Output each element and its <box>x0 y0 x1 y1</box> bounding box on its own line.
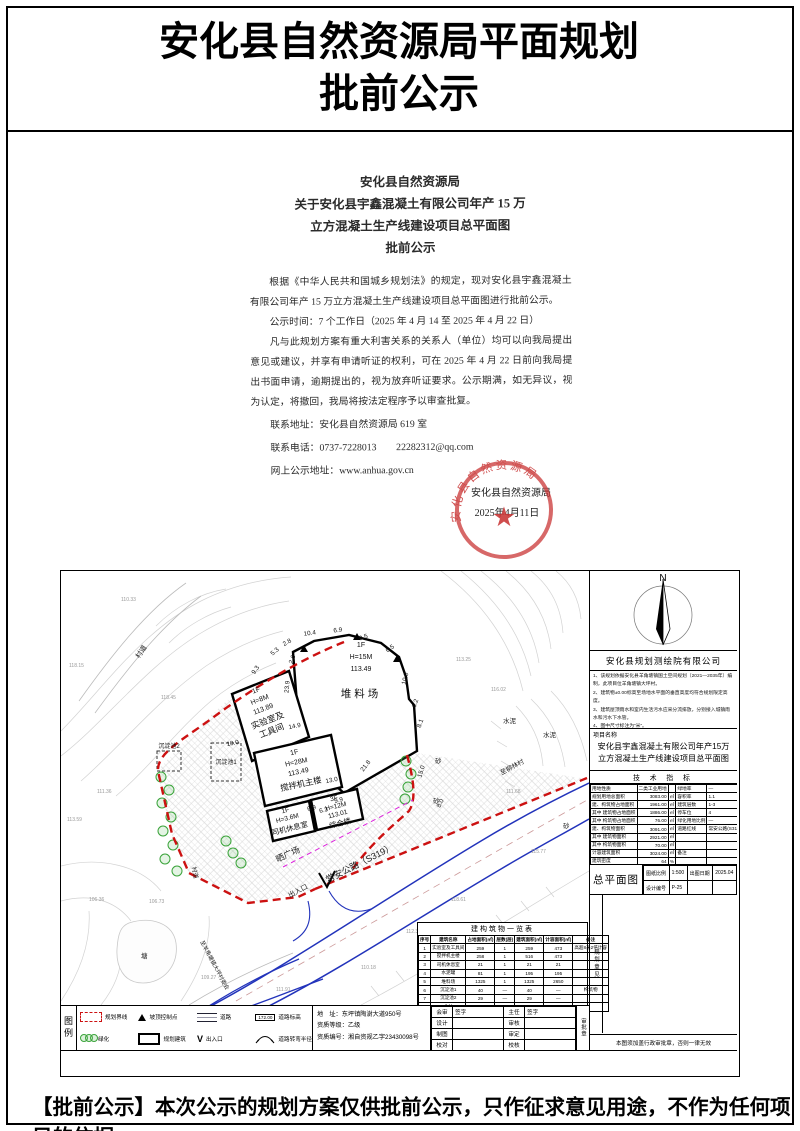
table-row: 计容建筑面积3024.00㎡备注 <box>591 849 738 857</box>
table-cell: 绿地率 <box>676 785 707 793</box>
cement-label: 水泥 <box>543 730 557 739</box>
legend-label: 绿化 <box>98 1035 109 1043</box>
table-cell: 1325 <box>466 977 495 985</box>
table-cell: 层数(层) <box>495 936 515 944</box>
elev: 118.45 <box>161 695 176 701</box>
table-cell: 堆料场 <box>431 977 466 985</box>
table-cell: 出图日期 <box>687 866 713 881</box>
table-cell: 主任 <box>504 1007 525 1018</box>
table-cell: 40 <box>515 986 544 994</box>
turn-radius-symbol <box>255 1034 275 1044</box>
table-cell <box>707 849 737 857</box>
table-cell <box>525 1029 576 1040</box>
review-area: 规划意见 本图须加盖行政审批章，否则一律无效 <box>590 895 737 1050</box>
tank1-label: 沉淀池1 <box>215 758 237 766</box>
table-cell: 2025.04 <box>713 866 737 881</box>
table-cell: 其中 建筑物面积 <box>591 833 638 841</box>
elev: 113.25 <box>456 657 471 663</box>
table-cell: 计容建筑面积 <box>591 849 638 857</box>
legend-item-elevation: 172.00道路标高 <box>252 1006 312 1028</box>
table-cell: 建筑层数 <box>676 801 707 809</box>
table-row: 建筑密度64% <box>591 857 738 865</box>
elev: 111.36 <box>97 789 112 795</box>
table-cell: 473 <box>544 952 573 960</box>
table-cell: 40 <box>466 986 495 994</box>
table-cell: ㎡ <box>668 793 676 801</box>
legend-bar: 图例 规划界线 坡顶控制点 道路 172.00道路标高 绿化 规划建筑 V出入口… <box>61 1005 589 1050</box>
table-cell <box>676 833 707 841</box>
public-notice-page: 安化县自然资源局平面规划 批前公示 安化县自然资源局 关于安化县宇鑫混凝土有限公… <box>0 0 800 1131</box>
table-cell: 签字 <box>525 1007 576 1018</box>
table-cell: 6 <box>419 986 431 994</box>
notice-title-1: 安化县自然资源局 <box>249 171 571 195</box>
table-cell: 建筑名称 <box>431 936 466 944</box>
table-cell: 3091.00 <box>637 825 668 833</box>
table-row: 4水泥罐811195195 <box>419 969 609 977</box>
table-cell: 审核 <box>504 1018 525 1029</box>
official-seal: 安化县自然资源局 ★ <box>438 448 570 570</box>
table-cell: 校核 <box>504 1040 525 1051</box>
dim: 23.9 <box>283 680 291 693</box>
table-cell: 停车位 <box>676 809 707 817</box>
table-cell: 1-3 <box>707 801 737 809</box>
stamp-required-note: 本图须加盖行政审批章，否则一律无效 <box>590 1034 737 1050</box>
road-symbol <box>197 1013 217 1022</box>
north-letter: N <box>659 573 666 584</box>
technical-indicators: 技 术 指 标 用地性质二类工业用地绿地率—规划用地总面积3083.00㎡容积率… <box>590 771 737 865</box>
table-cell: 沉淀池1 <box>431 986 466 994</box>
table-row: 5堆料场1325113252650 <box>419 977 609 985</box>
table-row: 图纸比例1:500出图日期2025.04 <box>644 866 737 881</box>
table-cell: 制图 <box>432 1029 453 1040</box>
buildings-list-table: 建构筑物一览表 序号建筑名称占地面积(㎡)层数(层)建筑面积(㎡)计容面积(㎡)… <box>417 922 588 1013</box>
table-cell: 序号 <box>419 936 431 944</box>
sand-label: 砂 <box>563 821 570 830</box>
drawing-info-row: 总平面图 图纸比例1:500出图日期2025.04设计编号P-25 <box>590 865 737 895</box>
table-row: 会审签字主任签字 <box>432 1007 576 1018</box>
table-cell: 516 <box>515 952 544 960</box>
table-cell: 1 <box>495 961 515 969</box>
table-cell: — <box>707 785 737 793</box>
table-cell: ㎡ <box>668 817 676 825</box>
table-row: 建、构筑物占地面积1961.00㎡建筑层数1-3 <box>591 801 738 809</box>
table-cell: 1 <box>495 969 515 977</box>
table-cell <box>668 785 676 793</box>
elev: 115.77 <box>531 849 546 855</box>
qualification-grade: 资质等级：乙级 <box>317 1020 428 1031</box>
table-row: 1实验室及工具间2591259473高超8米2倍计容 <box>419 944 609 952</box>
plan-notes: 1、该规划依据安化县羊角塘镇国土空间规划（2021—2035年）编制，此项目位羊… <box>590 671 737 729</box>
village-road-label: 村道 <box>133 643 148 660</box>
project-name-label: 项目名称 <box>593 730 734 739</box>
table-cell: 195 <box>544 969 573 977</box>
seal-star-icon: ★ <box>492 502 516 532</box>
legend-label: 道路转弯半径 <box>278 1035 312 1043</box>
table-cell: 其中 构筑物占地面积 <box>591 817 638 825</box>
table-cell: — <box>495 986 515 994</box>
table-cell: 4 <box>419 969 431 977</box>
notice-paragraph: 公示时间：7 个工作日（2025 年 4 月 14 至 2025 年 4 月 2… <box>250 311 572 333</box>
footer-disclaimer: 【批前公示】本次公示的规划方案仅供批前公示，只作征求意见用途，不作为任何项目的依… <box>6 1080 792 1131</box>
page-title-line2: 批前公示 <box>6 68 792 120</box>
table-cell: 实验室及工具间 <box>431 944 466 952</box>
table-cell: 259 <box>466 944 495 952</box>
elev: 111.91 <box>276 987 291 993</box>
table-cell: 建筑面积(㎡) <box>515 936 544 944</box>
table-cell: 4 <box>707 809 737 817</box>
table-cell: 沉淀池2 <box>431 994 466 1002</box>
table-cell <box>707 841 737 849</box>
greenery-symbol <box>80 1034 95 1044</box>
table-cell <box>453 1040 504 1051</box>
table-cell: P-25 <box>669 881 687 896</box>
note-line: 1、该规划依据安化县羊角塘镇国土空间规划（2021—2035年）编制，此项目位羊… <box>593 673 734 690</box>
table-cell <box>713 881 737 896</box>
surveyor-address: 地 址：东坪镇陶澍大道950号 <box>317 1009 428 1020</box>
surveyor-company: 安化县规划测绘院有限公司 <box>590 651 737 671</box>
note-line: 3、建筑屋顶雨水和室内生活污水应采分流排放，分别接入城镇雨水和污水下水管。 <box>593 707 734 724</box>
legend-label: 规划界线 <box>105 1013 127 1021</box>
slope-point-symbol <box>138 1014 146 1021</box>
table-cell: 备注 <box>676 849 707 857</box>
table-cell: 用地性质 <box>591 785 638 793</box>
table-cell <box>687 881 713 896</box>
yard-label: H=15M <box>350 654 373 661</box>
legend-label: 道路标高 <box>278 1013 300 1021</box>
qualification-number: 资质编号：湘自资规乙字23430098号 <box>317 1032 428 1043</box>
elev: 110.18 <box>361 965 376 971</box>
dim: 10.4 <box>303 629 317 638</box>
table-cell: 签字 <box>453 1007 504 1018</box>
table-cell: ㎡ <box>668 825 676 833</box>
project-name: 安化县宇鑫混凝土有限公司年产15万 立方混凝土生产线建设项目总平面图 <box>593 741 734 766</box>
table-cell: 1 <box>495 952 515 960</box>
branch-road-label: 至羊角塘镇大坪村委会 <box>198 939 231 992</box>
table-cell: 审定 <box>504 1029 525 1040</box>
table-cell: 195 <box>515 969 544 977</box>
building-symbol <box>138 1033 160 1045</box>
elev: 118.61 <box>451 897 466 903</box>
legend-label: 道路 <box>220 1013 231 1021</box>
sheet-inner: 1F H=8M 113.89 实验室及 工具间 1F H=15M 113.49 … <box>61 571 737 1051</box>
pond-outline <box>117 920 176 983</box>
table-row: 其中 构筑物面积70.00㎡ <box>591 841 738 849</box>
table-row: 用地性质二类工业用地绿地率— <box>591 785 738 793</box>
table-cell: 其中 建筑物占地面积 <box>591 809 638 817</box>
table-cell: 1961.00 <box>637 801 668 809</box>
scanned-notice: 安化县自然资源局 关于安化县宇鑫混凝土有限公司年产 15 万 立方混凝土生产线建… <box>249 171 573 482</box>
table-cell: 1.1 <box>707 793 737 801</box>
table-row: 3司机休息室2112121 <box>419 961 609 969</box>
drawing-type: 总平面图 <box>590 865 643 894</box>
table-cell: — <box>707 817 737 825</box>
notice-title-4: 批前公示 <box>249 237 571 261</box>
legend-label: 出入口 <box>206 1035 223 1043</box>
north-arrow-box: N <box>590 571 737 651</box>
dim: 6.2 <box>411 698 421 709</box>
north-arrow: N <box>590 571 736 651</box>
page-title-line1: 安化县自然资源局平面规划 <box>6 16 792 68</box>
legend-item-building: 规划建筑 <box>135 1028 193 1050</box>
table-cell: 7 <box>419 994 431 1002</box>
table-cell: 其中 构筑物面积 <box>591 841 638 849</box>
table-cell: 21 <box>515 961 544 969</box>
yard-label: 1F <box>357 642 365 649</box>
legend-item-road: 道路 <box>194 1006 252 1028</box>
elev: 111.68 <box>506 789 521 795</box>
table-cell: — <box>544 986 573 994</box>
notice-title-2: 关于安化县宇鑫混凝土有限公司年产 15 万 <box>249 193 571 217</box>
cement-label: 水泥 <box>503 716 517 725</box>
table-cell: 21 <box>466 961 495 969</box>
table-cell: 道路红线 <box>676 825 707 833</box>
site-plan-sheet: 1F H=8M 113.89 实验室及 工具间 1F H=15M 113.49 … <box>60 570 740 1077</box>
table-cell <box>676 841 707 849</box>
notice-body: 根据《中华人民共和国城乡规划法》的规定，现对安化县宇鑫混凝土有限公司年产 15 … <box>250 270 573 413</box>
review-vertical-label: 规划意见 <box>590 895 603 1033</box>
elev: 106.73 <box>149 899 165 905</box>
table-cell: 258 <box>466 952 495 960</box>
table-cell: 绿化用地比例 <box>676 817 707 825</box>
dim: 6.9 <box>333 627 343 635</box>
table-cell: 3024.00 <box>637 849 668 857</box>
table-cell: 图纸比例 <box>644 866 670 881</box>
table-cell: 建、构筑物面积 <box>591 825 638 833</box>
table-cell: 1886.00 <box>637 809 668 817</box>
elev: 116.02 <box>491 687 506 693</box>
legend-item-boundary: 规划界线 <box>77 1006 135 1028</box>
table-cell <box>453 1029 504 1040</box>
table-cell: 29 <box>515 994 544 1002</box>
table-cell: 1 <box>419 944 431 952</box>
sand-label: 砂 <box>435 756 442 765</box>
table-row: 校对校核 <box>432 1040 576 1051</box>
table-cell: 司机休息室 <box>431 961 466 969</box>
plan-drawing-area: 1F H=8M 113.89 实验室及 工具间 1F H=15M 113.49 … <box>61 571 589 1050</box>
table-cell <box>707 857 737 865</box>
legend-title: 图例 <box>61 1006 77 1050</box>
table-row: 规划用地总面积3083.00㎡容积率1.1 <box>591 793 738 801</box>
tank2-label: 沉淀池2 <box>158 742 180 750</box>
table-row: 序号建筑名称占地面积(㎡)层数(层)建筑面积(㎡)计容面积(㎡)备注 <box>419 936 609 944</box>
table-cell: % <box>668 857 676 865</box>
table-cell: 64 <box>637 857 668 865</box>
table-cell: 259 <box>515 944 544 952</box>
yard-label: 113.49 <box>351 666 372 673</box>
legend-item-gate: V出入口 <box>194 1028 252 1050</box>
table-row: 其中 构筑物占地面积76.00㎡绿化用地比例— <box>591 817 738 825</box>
table-cell: 二类工业用地 <box>637 785 668 793</box>
table-cell: ㎡ <box>668 833 676 841</box>
legend-item-point: 坡顶控制点 <box>135 1006 193 1028</box>
table-cell: 1325 <box>515 977 544 985</box>
table-row: 建、构筑物面积3091.00㎡道路红线常安公路(S319) <box>591 825 738 833</box>
table-cell <box>525 1040 576 1051</box>
dim: 2.8 <box>282 637 294 648</box>
tech-table-title: 技 术 指 标 <box>590 771 737 784</box>
legend-item-radius: 道路转弯半径 <box>252 1028 312 1050</box>
table-cell: 76.00 <box>637 817 668 825</box>
table-cell: 70.00 <box>637 841 668 849</box>
table-cell: 容积率 <box>676 793 707 801</box>
legend-item-green: 绿化 <box>77 1028 135 1050</box>
table-cell: 2 <box>419 952 431 960</box>
boundary-symbol <box>80 1012 102 1022</box>
note-line: 2、建筑物±0.00标高至场地水平面的垂直高度均符合规划限定高度。 <box>593 690 734 707</box>
approval-stamp-label: 审批章 <box>577 1006 589 1050</box>
table-row: 制图审定 <box>432 1029 576 1040</box>
legend-label: 坡顶控制点 <box>149 1013 177 1021</box>
notice-paragraph: 凡与此规划方案有重大利害关系的关系人（单位）均可以向我局提出意见或建议，并享有申… <box>250 331 573 414</box>
table-cell: 会审 <box>432 1007 453 1018</box>
gate-symbol: V <box>197 1034 203 1044</box>
table-cell: 3083.00 <box>637 793 668 801</box>
table-cell: 搅拌机主楼 <box>431 952 466 960</box>
elev: 106.36 <box>89 897 105 903</box>
table-cell <box>525 1018 576 1029</box>
table-cell: 计容面积(㎡) <box>544 936 573 944</box>
elev: 109.27 <box>201 975 217 981</box>
yard-name: 堆料场 <box>341 687 382 700</box>
surveyor-address-block: 地 址：东坪镇陶澍大道950号 资质等级：乙级 资质编号：湘自资规乙字23430… <box>313 1006 431 1050</box>
table-cell <box>676 857 707 865</box>
table-cell: 占地面积(㎡) <box>466 936 495 944</box>
table-cell: 1 <box>495 944 515 952</box>
elev: 118.15 <box>69 663 84 669</box>
table-cell: 校对 <box>432 1040 453 1051</box>
elev: 110.33 <box>121 597 136 603</box>
elev: 113.59 <box>67 817 82 823</box>
signature-table: 会审签字主任签字设计审核制图审定校对校核 <box>431 1006 577 1050</box>
table-cell: 设计编号 <box>644 881 670 896</box>
table-row: 设计审核 <box>432 1018 576 1029</box>
table-cell: ㎡ <box>668 809 676 817</box>
table-cell: ㎡ <box>668 841 676 849</box>
table-cell: 建筑密度 <box>591 857 638 865</box>
table-cell: ㎡ <box>668 849 676 857</box>
table-row: 6沉淀池140—40—构筑物 <box>419 986 609 994</box>
table-cell: 2921.00 <box>637 833 668 841</box>
legend-label: 规划建筑 <box>163 1035 185 1043</box>
title-block-panel: N 安化县规划测绘院有限公司 1、该规划依据安化县羊角塘镇国土空间规划（2021… <box>589 571 737 1050</box>
notice-contact-address: 联系地址：安化县自然资源局 619 室 <box>251 413 573 436</box>
table-row: 2搅拌机主楼2581516473 <box>419 952 609 960</box>
table-cell: 1:500 <box>669 866 687 881</box>
table-row: 其中 建筑物占地面积1886.00㎡停车位4 <box>591 809 738 817</box>
notice-title-3: 立方混凝土生产线建设项目总平面图 <box>249 215 571 239</box>
table-cell: 21 <box>544 961 573 969</box>
table-cell: 2650 <box>544 977 573 985</box>
elevation-symbol: 172.00 <box>255 1014 275 1021</box>
table-cell: 1 <box>495 977 515 985</box>
table-cell: — <box>544 994 573 1002</box>
table-cell: 水泥罐 <box>431 969 466 977</box>
table-cell: — <box>495 994 515 1002</box>
table-cell: 81 <box>466 969 495 977</box>
table-cell: 3 <box>419 961 431 969</box>
table-cell: 473 <box>544 944 573 952</box>
dim: 5.3 <box>269 646 281 657</box>
table-cell <box>453 1018 504 1029</box>
table-cell <box>707 833 737 841</box>
buildings-table-caption: 建构筑物一览表 <box>418 923 587 935</box>
dim: 8.1 <box>416 718 426 729</box>
table-cell: 29 <box>466 994 495 1002</box>
pond-label: 塘 <box>141 951 148 960</box>
page-header: 安化县自然资源局平面规划 批前公示 <box>6 6 792 132</box>
legend-items: 规划界线 坡顶控制点 道路 172.00道路标高 绿化 规划建筑 V出入口 道路… <box>77 1006 313 1050</box>
table-row: 其中 建筑物面积2921.00㎡ <box>591 833 738 841</box>
table-cell: ㎡ <box>668 801 676 809</box>
notice-paragraph: 根据《中华人民共和国城乡规划法》的规定，现对安化县宇鑫混凝土有限公司年产 15 … <box>250 270 572 312</box>
table-row: 设计编号P-25 <box>644 881 737 896</box>
table-row: 7沉淀池229—29— <box>419 994 609 1002</box>
table-cell: 建、构筑物占地面积 <box>591 801 638 809</box>
table-cell: 规划用地总面积 <box>591 793 638 801</box>
table-cell: 常安公路(S319) <box>707 825 737 833</box>
project-name-box: 项目名称 安化县宇鑫混凝土有限公司年产15万 立方混凝土生产线建设项目总平面图 <box>590 729 737 771</box>
table-cell: 设计 <box>432 1018 453 1029</box>
table-cell: 5 <box>419 977 431 985</box>
dim: 9.3 <box>250 664 261 676</box>
